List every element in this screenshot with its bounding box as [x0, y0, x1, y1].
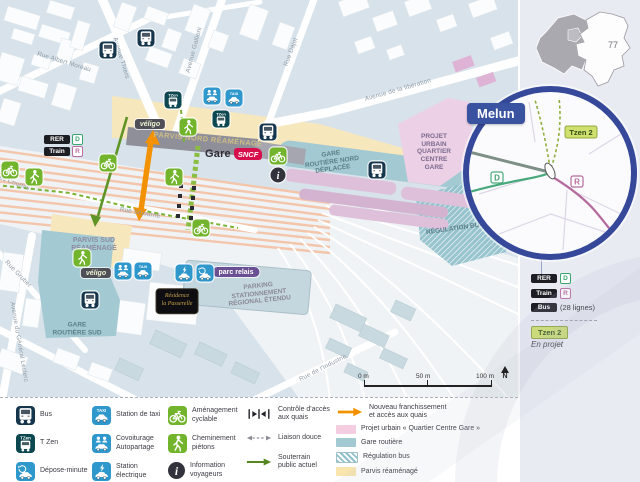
svg-text:TAXI: TAXI	[139, 265, 147, 269]
svg-text:TZen: TZen	[216, 111, 226, 116]
legend-column-3: Contrôle d'accès aux quaisLiaison douceS…	[245, 406, 330, 470]
tzen-icon: TZen	[165, 92, 182, 109]
en-projet-note: En projet	[531, 340, 563, 349]
legend-item: Parvis réaménagé	[336, 467, 480, 476]
bike-icon	[2, 162, 19, 179]
taxi-icon: TAXI	[92, 406, 111, 425]
covoiturage-icon	[204, 88, 221, 105]
tzen-icon: TZen	[213, 111, 230, 128]
pedestrian-icon	[26, 169, 43, 186]
rer-mode-chip: RER	[531, 274, 557, 283]
legend-label: Parvis réaménagé	[361, 468, 418, 476]
svg-text:TAXI: TAXI	[97, 408, 106, 413]
bus-icon	[138, 30, 155, 47]
souterrain-icon	[245, 455, 273, 469]
svg-text:i: i	[175, 465, 179, 478]
legend-item: Projet urbain « Quartier Centre Gare »	[336, 425, 480, 434]
gates-icon	[245, 407, 273, 421]
franchissement-icon	[336, 405, 364, 419]
legend-label: Cheminement piétons	[192, 435, 236, 451]
legend-item: Souterrain public actuel	[245, 454, 330, 470]
legend-column-4: Nouveau franchissement et accès aux quai…	[336, 404, 480, 476]
legend-item: Aménagement cyclable	[168, 406, 238, 425]
ile-de-france-inset-map: 77	[528, 4, 634, 92]
melun-station-map-page: Rue Albert MoreauAvenue ThiersAvenue Gal…	[0, 0, 640, 482]
inset-d-chip: D	[494, 174, 500, 183]
legend-item: Covoiturage Autopartage	[92, 434, 160, 453]
bike-icon	[168, 406, 187, 425]
covoiturage-icon	[115, 263, 132, 280]
legend-item: iInformation voyageurs	[168, 462, 238, 479]
svg-text:TZen: TZen	[168, 92, 178, 97]
legend-item: Liaison douce	[245, 431, 330, 445]
legend-item: TAXIStation de taxi	[92, 406, 160, 425]
bike-icon	[100, 155, 117, 172]
legend-label: Covoiturage Autopartage	[116, 435, 154, 451]
bottom-legend: BusTZenT ZenDépose-minuteTAXIStation de …	[0, 397, 518, 482]
swatch-yellow	[336, 467, 356, 476]
inset-tzen-chip: Tzen 2	[569, 128, 592, 137]
pedestrian-icon	[74, 250, 91, 267]
taxi-icon: TAXI	[135, 263, 152, 280]
legend-item: Dépose-minute	[16, 462, 87, 481]
legend-label: Station électrique	[116, 463, 146, 479]
legend-column-0: BusTZenT ZenDépose-minute	[16, 406, 87, 481]
legend-bus-row: Bus (28 lignes)	[531, 303, 595, 312]
legend-label: Dépose-minute	[40, 467, 87, 475]
rer-d-chip: D	[560, 273, 571, 284]
svg-text:TZen: TZen	[20, 435, 31, 440]
legend-item: Nouveau franchissement et accès aux quai…	[336, 404, 480, 420]
swatch-teal	[336, 438, 356, 447]
legend-item: Cheminement piétons	[168, 434, 238, 453]
legend-label: Aménagement cyclable	[192, 407, 238, 423]
train-mode-chip: Train	[531, 289, 557, 298]
electrique-icon	[92, 462, 111, 481]
train-r-chip: R	[560, 288, 571, 299]
legend-label: T Zen	[40, 439, 58, 447]
melun-title-badge: Melun	[467, 103, 525, 124]
legend-tzen-row: Tzen 2	[531, 326, 568, 339]
legend-label: Information voyageurs	[190, 462, 225, 478]
svg-text:TAXI: TAXI	[230, 92, 238, 96]
tzen-icon: TZen	[16, 434, 35, 453]
department-77-label: 77	[608, 40, 618, 50]
taxi-icon: TAXI	[226, 90, 243, 107]
legend-label: Station de taxi	[116, 411, 160, 419]
bus-icon	[260, 124, 277, 141]
bus-icon	[100, 42, 117, 59]
liaison-icon	[245, 431, 273, 445]
info-icon: i	[271, 168, 286, 183]
covoiturage-icon	[92, 434, 111, 453]
svg-text:i: i	[277, 171, 280, 182]
map-icons-layer: TZenTAXITZeniTAXI	[0, 0, 518, 397]
bus-icon	[369, 162, 386, 179]
info-icon: i	[168, 462, 185, 479]
legend-label: Gare routière	[361, 439, 402, 447]
pedestrian-icon	[180, 119, 197, 136]
legend-item: Régulation bus	[336, 452, 480, 463]
electrique-icon	[176, 265, 193, 282]
legend-column-1: TAXIStation de taxiCovoiturage Autoparta…	[92, 406, 160, 481]
legend-column-2: Aménagement cyclableCheminement piétonsi…	[168, 406, 238, 479]
swatch-pink	[336, 425, 356, 434]
pedestrian-icon	[168, 434, 187, 453]
pedestrian-icon	[166, 169, 183, 186]
legend-item: Station électrique	[92, 462, 160, 481]
depose-icon	[197, 265, 214, 282]
bus-icon	[82, 292, 99, 309]
bike-icon	[270, 148, 287, 165]
bus-mode-chip: Bus	[531, 303, 557, 312]
legend-rer-row: RER D	[531, 273, 571, 284]
legend-label: Régulation bus	[363, 453, 410, 461]
legend-label: Souterrain public actuel	[278, 454, 317, 470]
bus-icon	[16, 406, 35, 425]
station-area-map: Rue Albert MoreauAvenue ThiersAvenue Gal…	[0, 0, 518, 397]
bus-lines-note: (28 lignes)	[560, 303, 595, 312]
legend-label: Nouveau franchissement et accès aux quai…	[369, 404, 446, 420]
legend-train-row: Train R	[531, 288, 571, 299]
legend-item: Gare routière	[336, 438, 480, 447]
bike-icon	[193, 220, 210, 237]
legend-item: Contrôle d'accès aux quais	[245, 406, 330, 422]
legend-item: Bus	[16, 406, 87, 425]
legend-label: Liaison douce	[278, 434, 321, 442]
legend-label: Contrôle d'accès aux quais	[278, 406, 330, 422]
inset-r-chip: R	[574, 178, 580, 187]
depose-icon	[16, 462, 35, 481]
legend-label: Projet urbain « Quartier Centre Gare »	[361, 425, 480, 433]
legend-label: Bus	[40, 411, 52, 419]
swatch-stripes	[336, 452, 358, 463]
tzen-line-chip: Tzen 2	[531, 326, 568, 339]
legend-item: TZenT Zen	[16, 434, 87, 453]
legend-divider	[531, 320, 597, 321]
